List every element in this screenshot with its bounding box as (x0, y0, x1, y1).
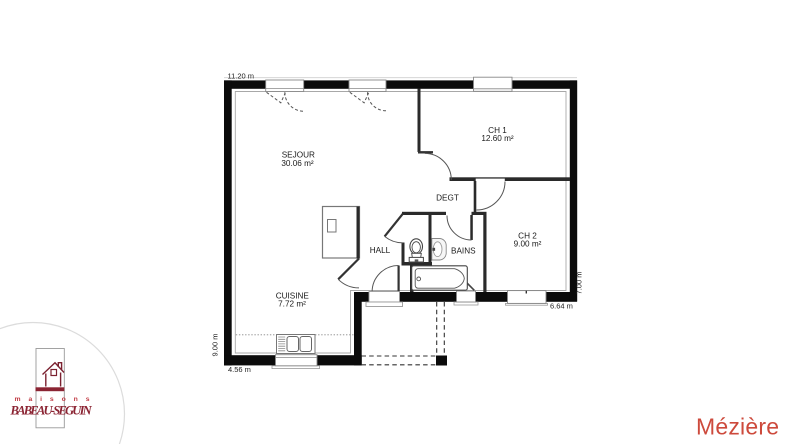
svg-text:7.00 m: 7.00 m (575, 272, 584, 295)
svg-text:HALL: HALL (370, 246, 391, 255)
svg-text:Mézière: Mézière (696, 414, 779, 440)
svg-text:4.56 m: 4.56 m (228, 365, 251, 374)
svg-text:DEGT: DEGT (436, 193, 459, 202)
svg-text:11.20 m: 11.20 m (228, 71, 255, 80)
svg-text:7.72 m²: 7.72 m² (278, 300, 306, 309)
svg-text:30.06 m²: 30.06 m² (281, 159, 314, 168)
svg-text:maisons: maisons (15, 396, 98, 403)
svg-text:BABEAU-SEGUIN: BABEAU-SEGUIN (10, 404, 93, 418)
svg-text:9.00 m²: 9.00 m² (514, 240, 542, 249)
svg-text:12.60 m²: 12.60 m² (481, 134, 514, 143)
svg-text:6.64 m: 6.64 m (550, 302, 573, 311)
svg-text:BAINS: BAINS (451, 246, 476, 255)
svg-text:9.00 m: 9.00 m (211, 334, 220, 357)
